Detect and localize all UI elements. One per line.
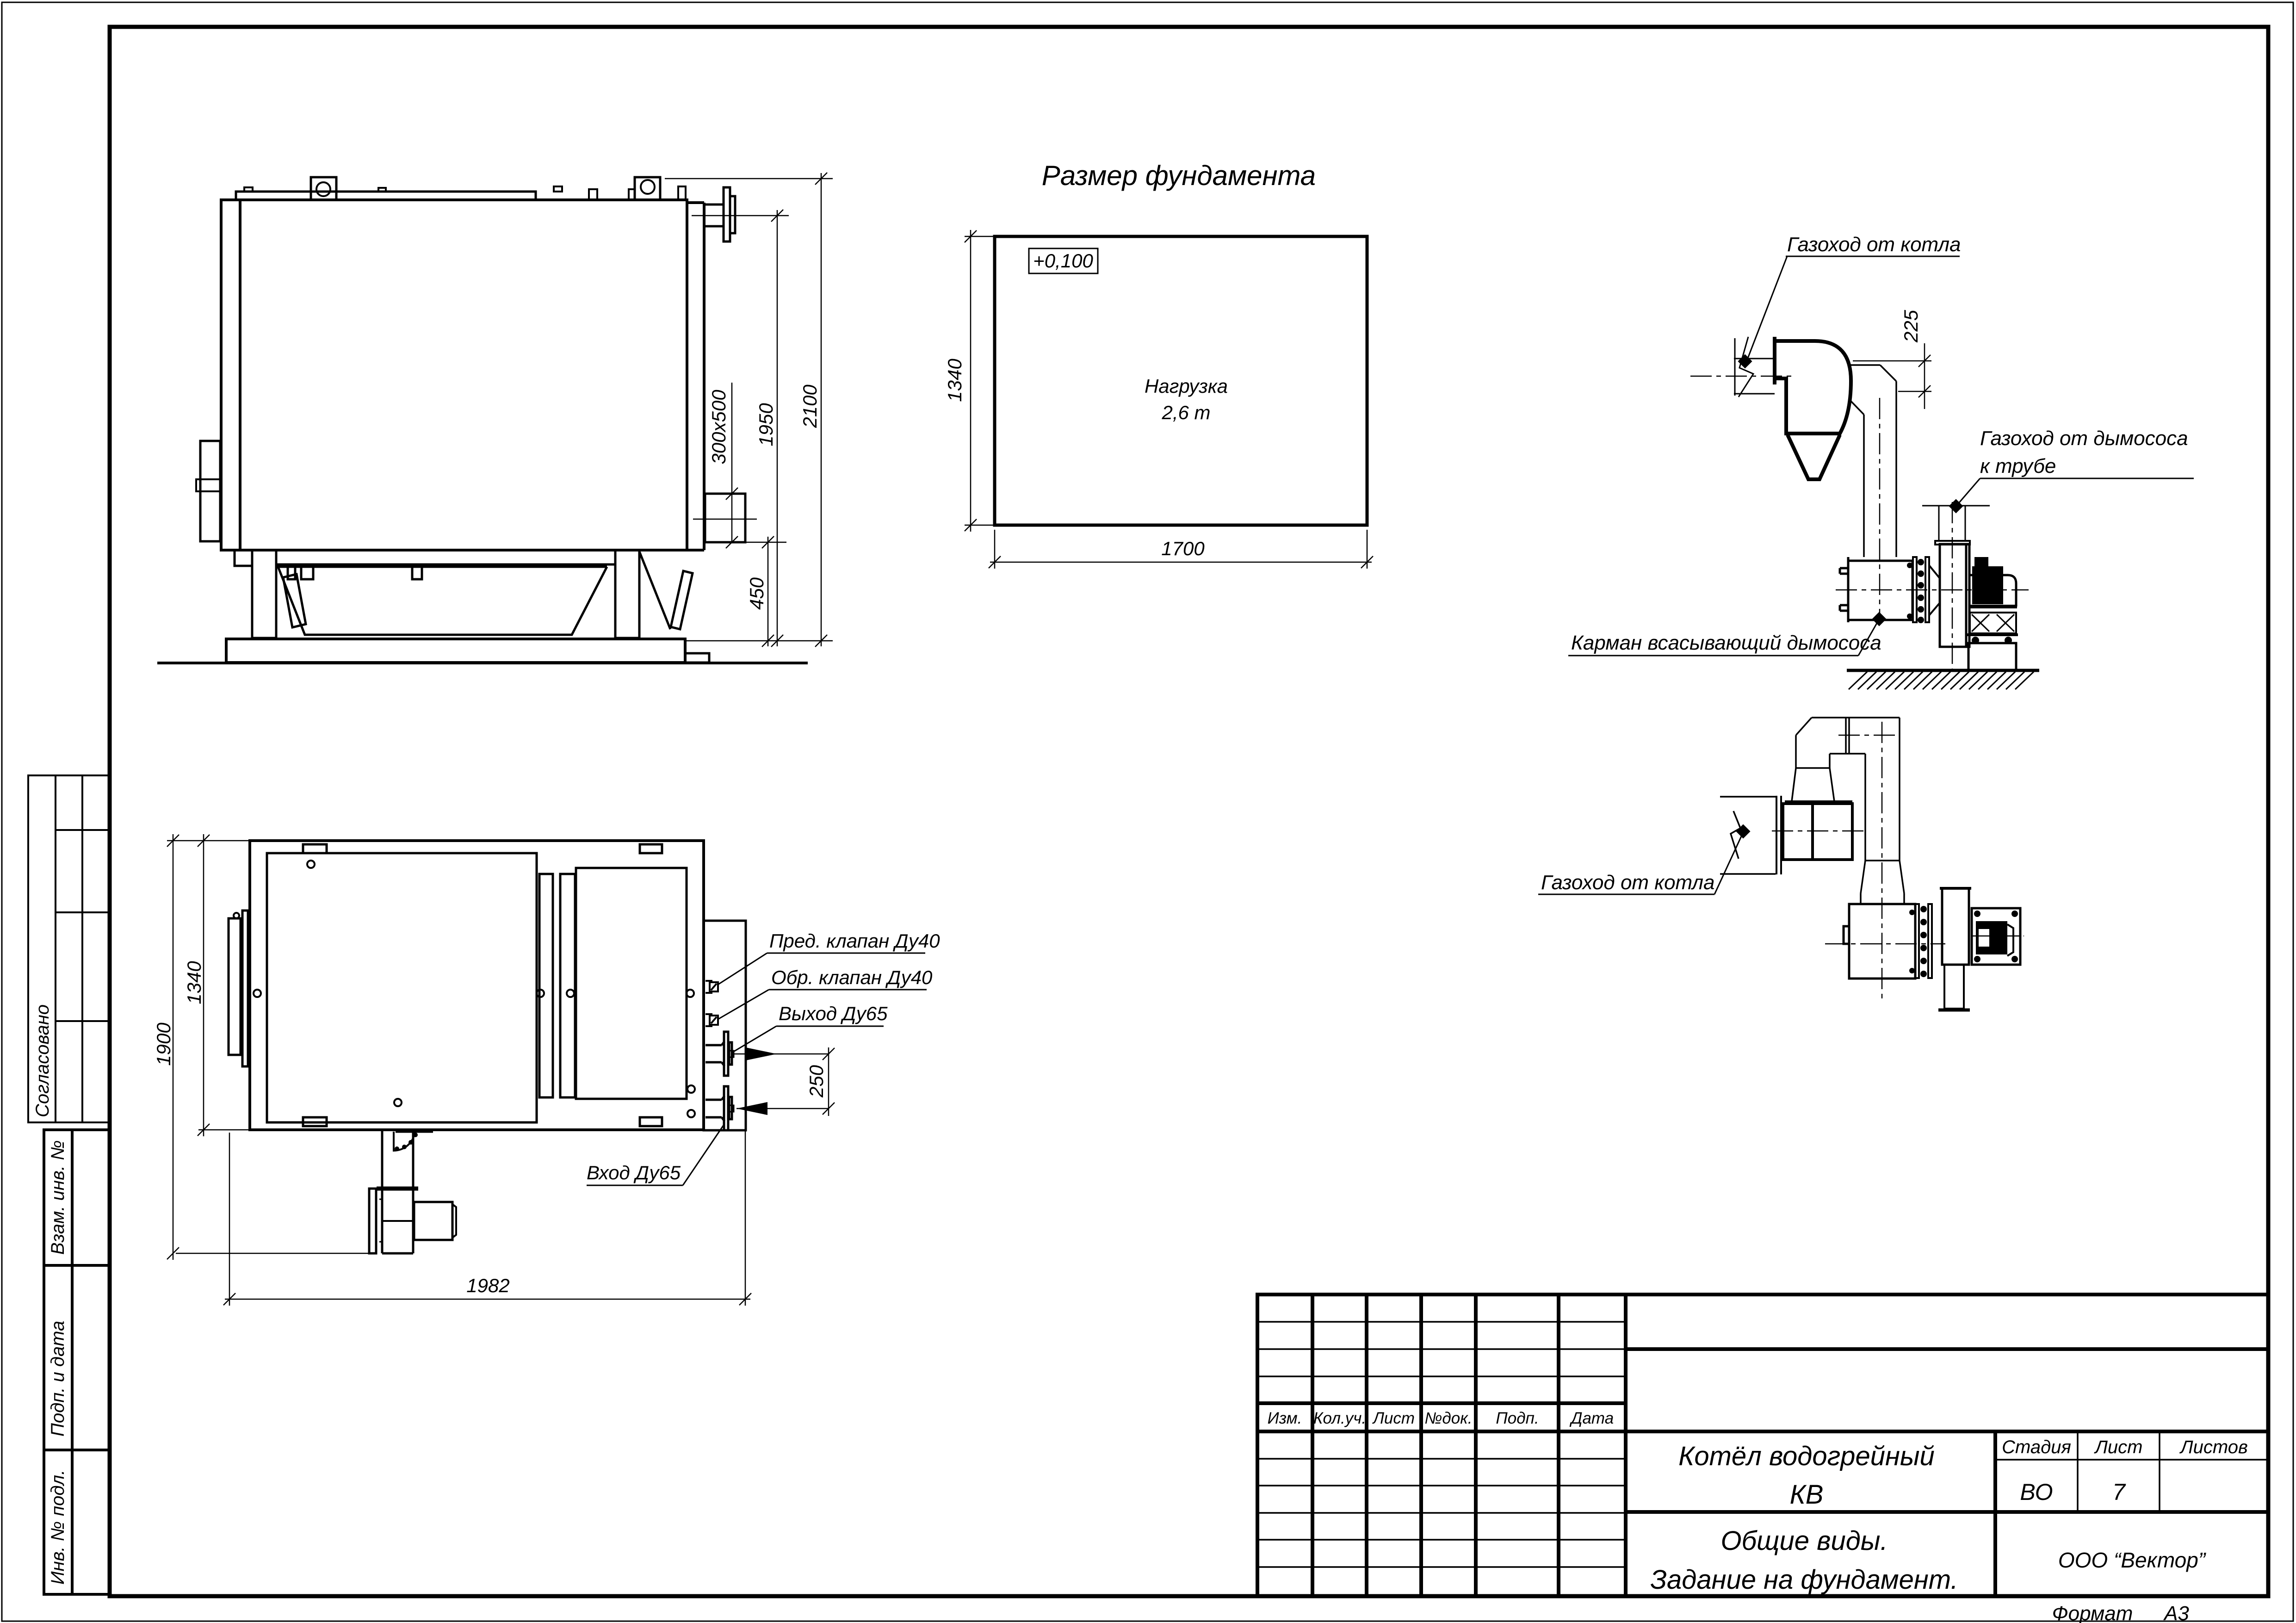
svg-text:Подп.: Подп. (1496, 1409, 1539, 1427)
svg-text:Формат: Формат (2052, 1602, 2133, 1623)
svg-text:2100: 2100 (799, 384, 821, 428)
svg-text:1950: 1950 (755, 403, 777, 446)
svg-text:КВ: КВ (1790, 1480, 1824, 1510)
svg-text:Обр. клапан Ду40: Обр. клапан Ду40 (771, 966, 933, 988)
svg-text:Лист: Лист (1372, 1409, 1415, 1427)
svg-text:Изм.: Изм. (1268, 1409, 1302, 1427)
svg-text:Пред. клапан Ду40: Пред. клапан Ду40 (769, 930, 940, 952)
svg-text:А3: А3 (2163, 1602, 2189, 1623)
svg-text:Лист: Лист (2094, 1437, 2143, 1457)
svg-text:Кол.уч.: Кол.уч. (1313, 1409, 1366, 1427)
svg-text:№док.: №док. (1425, 1409, 1473, 1427)
svg-text:Размер фундамента: Размер фундамента (1042, 160, 1316, 191)
svg-text:Согласовано: Согласовано (32, 1004, 53, 1117)
svg-text:ООО “Вектор”: ООО “Вектор” (2058, 1548, 2207, 1572)
svg-text:Газоход от котла: Газоход от котла (1787, 233, 1961, 256)
svg-text:Карман всасывающий дымососа: Карман всасывающий дымососа (1571, 632, 1881, 654)
svg-text:Газоход от дымососа: Газоход от дымососа (1980, 427, 2188, 450)
svg-text:1900: 1900 (153, 1022, 174, 1066)
svg-text:ВО: ВО (2020, 1479, 2053, 1505)
svg-text:Общие виды.: Общие виды. (1720, 1526, 1888, 1556)
svg-text:250: 250 (805, 1065, 827, 1098)
svg-text:Задание на фундамент.: Задание на фундамент. (1650, 1565, 1958, 1595)
svg-text:к трубе: к трубе (1980, 455, 2056, 477)
svg-text:+0,100: +0,100 (1033, 250, 1093, 272)
svg-text:1340: 1340 (944, 359, 965, 402)
svg-text:Нагрузка: Нагрузка (1145, 375, 1228, 397)
svg-text:2,6 т: 2,6 т (1161, 402, 1210, 423)
svg-text:Стадия: Стадия (2002, 1437, 2071, 1457)
svg-text:Вход Ду65: Вход Ду65 (587, 1162, 681, 1183)
svg-text:Котёл водогрейный: Котёл водогрейный (1678, 1441, 1935, 1471)
svg-text:1340: 1340 (183, 961, 205, 1004)
svg-text:Выход Ду65: Выход Ду65 (779, 1003, 888, 1024)
svg-text:300х500: 300х500 (708, 390, 730, 465)
svg-text:Газоход от котла: Газоход от котла (1541, 871, 1715, 894)
svg-text:1982: 1982 (466, 1275, 509, 1296)
svg-text:Листов: Листов (2179, 1437, 2248, 1457)
svg-text:Взам. инв. №: Взам. инв. № (48, 1140, 68, 1255)
svg-text:1700: 1700 (1161, 538, 1205, 559)
svg-text:Подп. и дата: Подп. и дата (48, 1321, 68, 1437)
svg-text:450: 450 (746, 577, 767, 610)
svg-text:7: 7 (2112, 1479, 2126, 1505)
svg-text:Инв. № подл.: Инв. № подл. (48, 1470, 68, 1585)
svg-text:225: 225 (1900, 310, 1922, 343)
svg-text:Дата: Дата (1569, 1409, 1614, 1427)
